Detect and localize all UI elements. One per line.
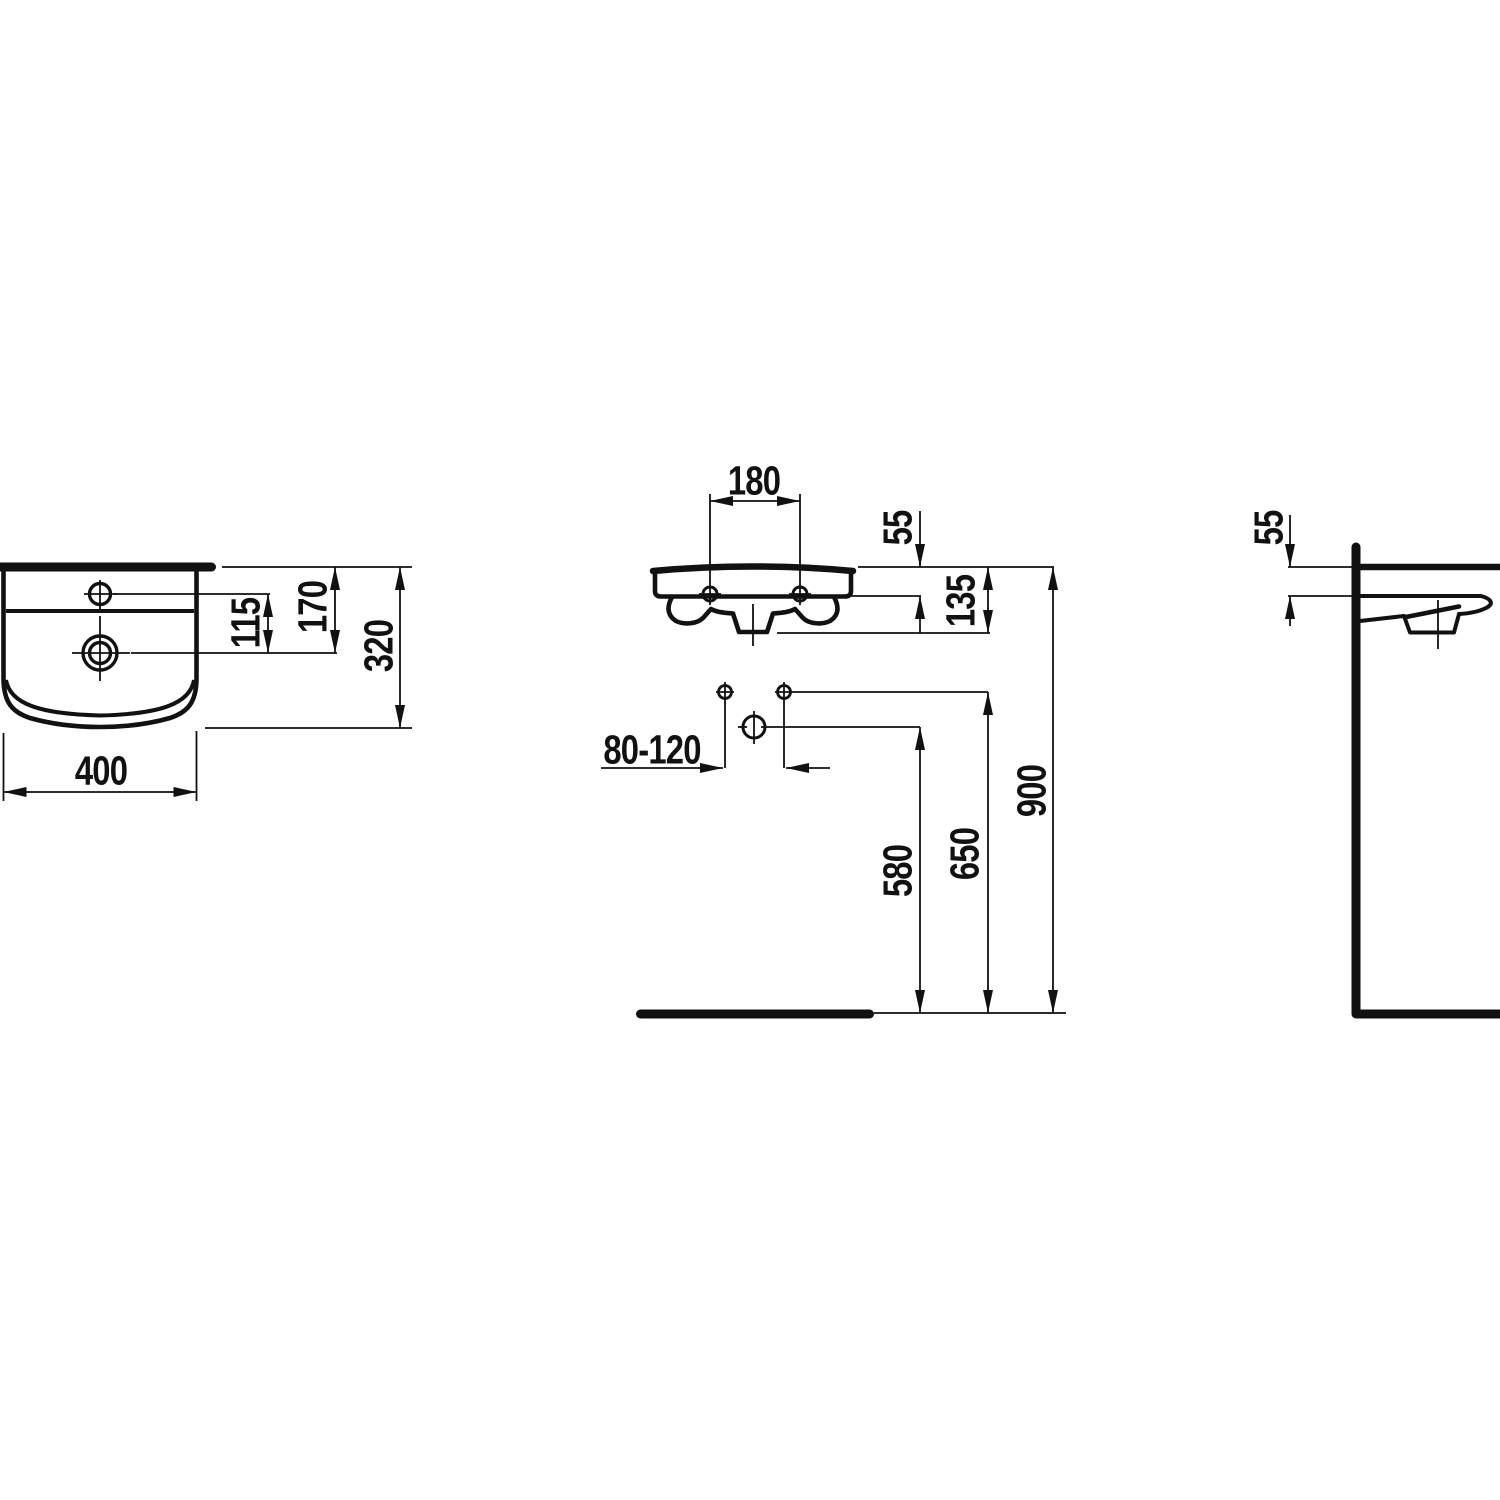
wall-edge-bar: [0, 563, 216, 572]
deck-outline: [655, 570, 851, 597]
dim-label-180: 180: [728, 457, 781, 503]
dim-label-170: 170: [289, 581, 335, 634]
drain-hole-icon: [72, 616, 130, 681]
side-bowl-curve: [1459, 596, 1491, 614]
floor-bar: [636, 1010, 874, 1019]
top-view: 115 170 320 400: [0, 563, 412, 802]
dim-label-400: 400: [75, 747, 128, 793]
dim-fixing-spacing: 180: [710, 457, 800, 503]
dim-floor-to-supply: 650: [941, 692, 988, 1013]
wall-connection-template: 80-120: [601, 682, 988, 772]
dim-label-55-front: 55: [874, 510, 920, 545]
dim-label-900: 900: [1008, 765, 1054, 818]
dim-label-55-side: 55: [1245, 510, 1291, 545]
dim-tap-to-drain: 115: [222, 594, 268, 653]
dim-width: 400: [4, 747, 197, 793]
rim-top-line: [653, 567, 853, 572]
dim-floor-to-rim: 900: [1008, 567, 1054, 1013]
dim-label-320: 320: [355, 620, 401, 673]
dim-depth: 320: [355, 567, 401, 728]
side-underside-slope: [1360, 616, 1404, 621]
front-view: 180 55 135: [601, 457, 1066, 1019]
dim-label-135: 135: [937, 575, 983, 628]
dim-label-580: 580: [874, 845, 920, 898]
dim-label-650: 650: [941, 828, 987, 881]
dim-floor-to-trap: 580: [874, 727, 920, 1013]
dim-rim-to-trap: 135: [937, 567, 988, 633]
dim-label-80-120: 80-120: [603, 726, 701, 772]
side-bowl-back-edge: [1406, 607, 1459, 618]
dim-wall-to-drain: 170: [289, 567, 335, 653]
waste-outlet-icon: [738, 711, 765, 744]
drawing-page: 115 170 320 400: [0, 0, 1500, 1500]
dim-supply-spacing: 80-120: [601, 726, 830, 772]
basin-inner-arc: [6, 680, 194, 716]
dim-label-115: 115: [222, 598, 268, 649]
side-view: 55: [1245, 510, 1500, 1014]
tap-hole-icon: [84, 580, 116, 609]
washbasin-technical-drawing: 115 170 320 400: [0, 0, 1500, 1500]
dim-rim-to-fixing: 55: [874, 510, 920, 633]
dim-rim-to-underside: 55: [1245, 510, 1291, 626]
supply-hole-right-icon: [778, 682, 791, 768]
supply-hole-left-icon: [716, 682, 734, 768]
